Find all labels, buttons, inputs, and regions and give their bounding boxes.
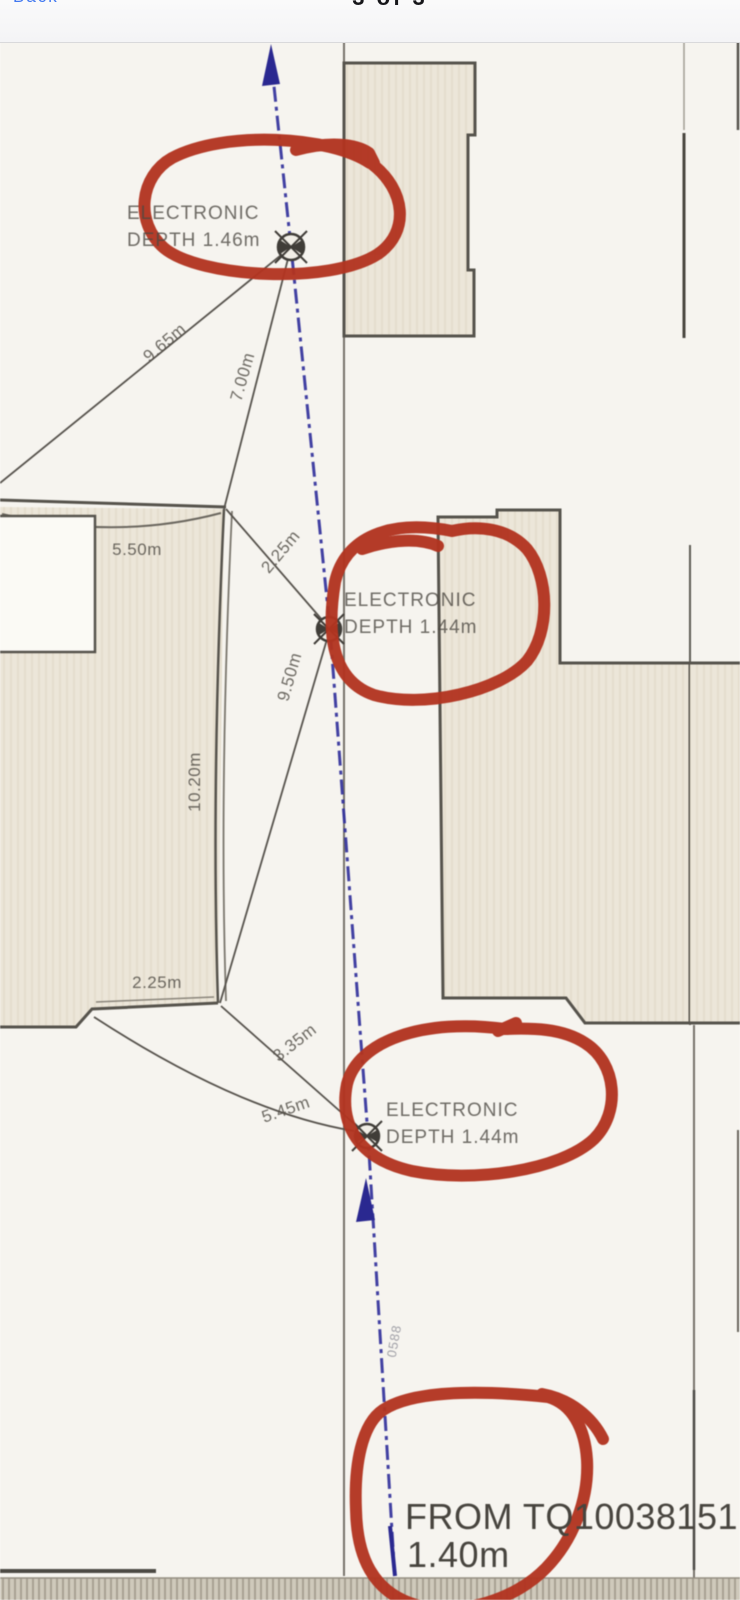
photo-viewer-screen: ELECTRONIC DEPTH 1.46m ELECTRONIC DEPTH … — [0, 0, 740, 1600]
survey-point-3-line1: ELECTRONIC — [386, 1097, 519, 1124]
survey-point-label-3: ELECTRONIC DEPTH 1.44m — [386, 1097, 519, 1151]
dimension-label-5-50: 5.50m — [112, 540, 162, 560]
survey-point-symbol-1 — [275, 231, 307, 263]
back-button-label: Back — [13, 0, 77, 6]
building-top — [344, 63, 475, 336]
from-reference-label: FROM TQ10038151 — [405, 1496, 738, 1538]
survey-point-label-2: ELECTRONIC DEPTH 1.44m — [344, 587, 477, 641]
plan-drawing — [0, 0, 740, 1600]
survey-point-3-line2: DEPTH 1.44m — [386, 1124, 519, 1151]
survey-point-2-line2: DEPTH 1.44m — [344, 614, 477, 641]
dimension-label-10-20: 10.20m — [185, 752, 205, 812]
road-hatch-band — [0, 1578, 740, 1600]
survey-point-label-1: ELECTRONIC DEPTH 1.46m — [127, 200, 260, 254]
photo-pager-label: 3 of 3 — [310, 0, 470, 8]
viewer-header: Back 3 of 3 — [0, 0, 740, 43]
survey-point-1-line2: DEPTH 1.46m — [127, 227, 260, 254]
photo-pager: 3 of 3 — [310, 0, 470, 8]
survey-plan-photo[interactable]: ELECTRONIC DEPTH 1.46m ELECTRONIC DEPTH … — [0, 0, 740, 1600]
survey-point-2-line1: ELECTRONIC — [344, 587, 477, 614]
survey-point-1-line1: ELECTRONIC — [127, 200, 260, 227]
back-button[interactable]: Back — [13, 0, 77, 6]
red-circle-3-tick — [498, 1023, 516, 1031]
building-far-right-fill — [690, 663, 740, 1023]
dimension-label-2-25-lower: 2.25m — [132, 973, 182, 993]
from-depth-label: 1.40m — [407, 1534, 510, 1576]
building-left-court — [0, 516, 95, 652]
